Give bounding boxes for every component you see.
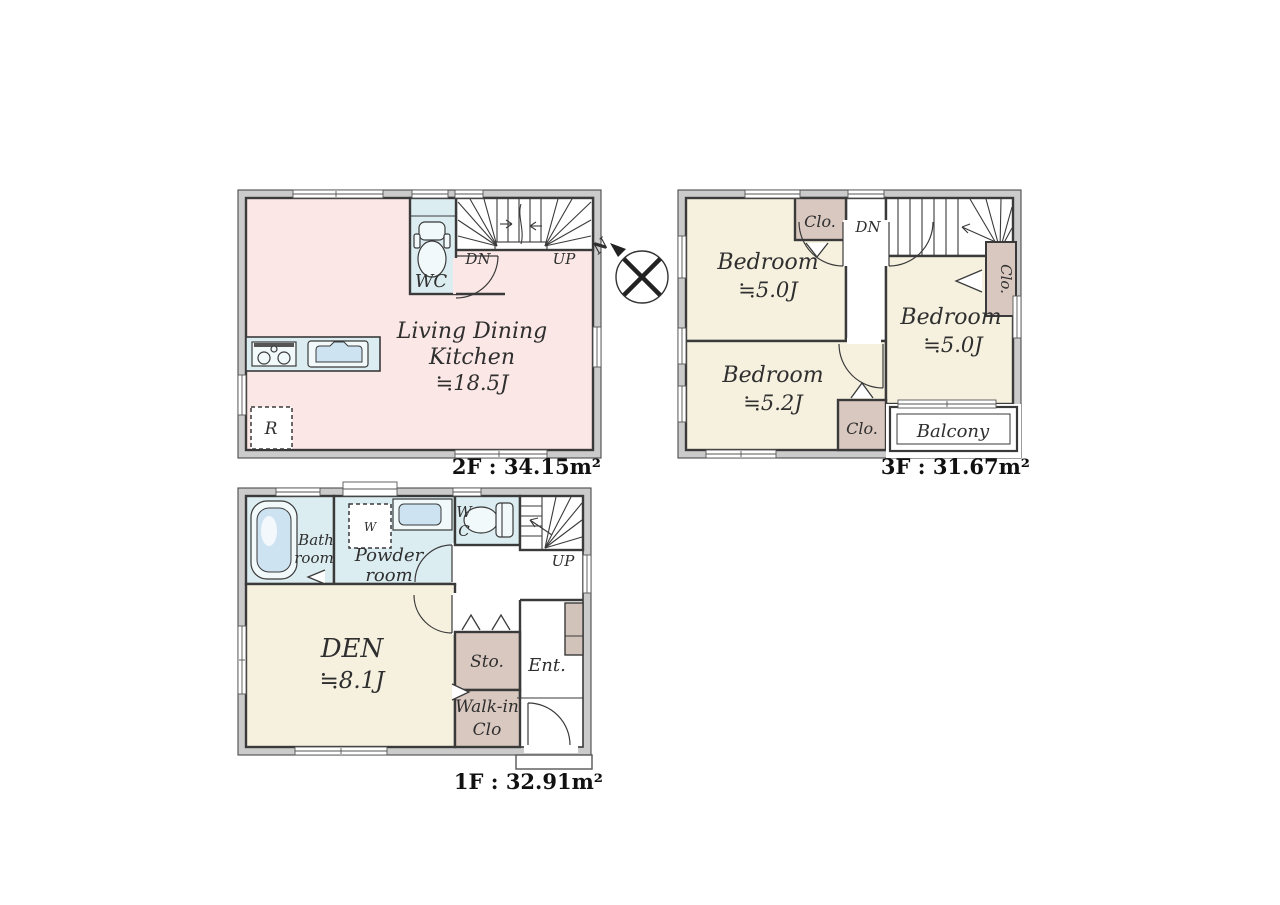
3f-closet-right-label: Clo. [997,264,1015,294]
3f-closet-bottom-label: Clo. [846,419,878,438]
2f-stair-up-label: UP [553,250,577,268]
entrance-door-gap [524,745,578,753]
2f-stair-dn-label: DN [464,250,491,268]
1f-wc-label-line1: W [456,503,473,521]
2f-stairs [456,198,593,250]
2f-ldk-name-line2: Kitchen [428,345,515,370]
1f-powder-label-line1: Powder [354,545,425,566]
floor-1f-plan: Bath room W Powder room W C [238,482,603,794]
kitchen-counter [246,337,380,371]
2f-ldk-name-line1: Living Dining [396,319,548,344]
3f-bedroom-nw-size: ≒5.0J [738,278,799,302]
vanity-sink-icon [393,499,452,530]
3f-area-label: 3F : 31.67m² [881,454,1030,479]
3f-closet-top-label: Clo. [804,212,836,231]
2f-wc-door-gap [453,258,459,294]
1f-den-size: ≒8.1J [319,668,386,694]
1f-stairs [520,496,583,550]
3f-bedroom-sw-door-gap [847,338,881,344]
1f-bath-label-line1: Bath [297,531,334,549]
entrance-porch-step [516,755,592,769]
1f-bath-label-line2: room [294,549,333,567]
1f-walkin-label-line1: Walk-in [455,697,519,717]
shoe-cabinet-icon [565,603,583,655]
3f-bedroom-sw-size: ≒5.2J [743,391,804,415]
3f-bedroom-e-name: Bedroom [899,305,1001,330]
floor-3f-plan: DN Clo. Clo. Clo. Balcony Bedroom [678,190,1030,479]
3f-stair-dn-label: DN [854,218,881,236]
bathtub-icon [251,501,297,579]
1f-storage-label: Sto. [470,652,504,672]
3f-bedroom-e-door-gap [883,220,889,266]
2f-wc-label: WC [415,271,448,292]
3f-bedroom-sw-name: Bedroom [721,363,823,388]
1f-walkin-label-line2: Clo [473,720,502,740]
floor-2f-plan: DN UP WC [238,190,601,479]
2f-ldk-size: ≒18.5J [436,371,510,395]
1f-den-name: DEN [320,634,385,664]
1f-stair-up-label: UP [552,552,576,570]
floorplan-svg: DN UP WC [0,0,1280,905]
refrigerator-label: R [264,419,278,439]
washer-label: W [364,520,378,534]
floorplan-canvas: DN UP WC [0,0,1280,905]
3f-balcony-label: Balcony [916,421,990,442]
2f-area-label: 2F : 34.15m² [452,454,601,479]
1f-den-door-gap [452,593,458,635]
stove-icon [252,342,296,366]
1f-wc-label-line2: C [458,522,470,540]
sink-icon [308,341,368,367]
1f-entrance-label: Ent. [527,655,566,676]
1f-area-label: 1F : 32.91m² [454,769,603,794]
3f-bedroom-e-size: ≒5.0J [923,333,984,357]
1f-powder-door-gap [452,543,458,584]
3f-bedroom-nw-door-gap [843,220,849,266]
3f-bedroom-nw-name: Bedroom [716,250,818,275]
north-arrow-icon [610,243,626,257]
1f-den [246,584,455,747]
